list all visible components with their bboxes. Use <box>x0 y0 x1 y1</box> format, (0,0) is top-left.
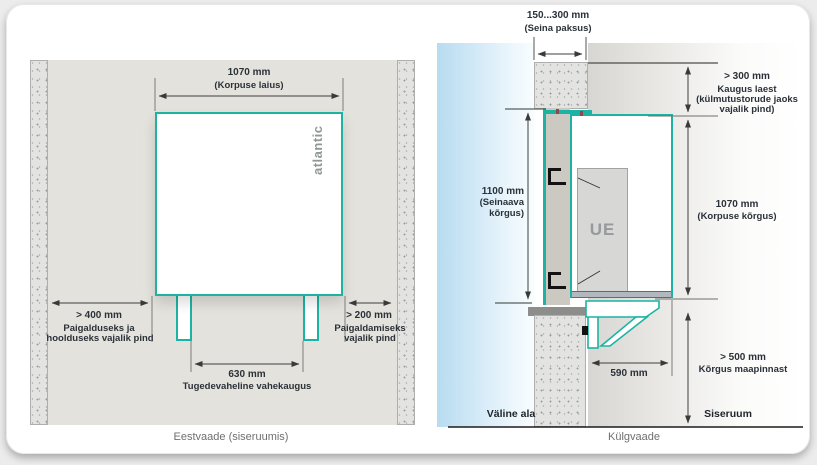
dim-opening-height-value: 1100 mm <box>420 186 524 197</box>
dim-opening-height-label1: (Seinaava <box>420 197 524 208</box>
dim-body-height-value: 1070 mm <box>716 199 759 210</box>
outdoor-area-label: Väline ala <box>487 408 535 420</box>
front-view-caption: Eestvaade (siseruumis) <box>174 431 289 443</box>
brand-text: atlantic <box>310 117 336 183</box>
dim-depth-value: 590 mm <box>610 368 647 379</box>
side-wall-upper <box>534 62 588 109</box>
dim-body-width-label: (Korpuse laius) <box>214 80 283 91</box>
dim-right-clearance-label2: vajalik pind <box>344 333 396 344</box>
dim-supports-label: Tugedevaheline vahekaugus <box>183 381 312 392</box>
dim-ground-height-value: > 500 mm <box>720 352 766 363</box>
support-leg-left <box>176 294 192 341</box>
indoor-area-label: Siseruum <box>704 408 752 420</box>
side-view-caption: Külgvaade <box>608 431 660 443</box>
wall-opening-duct <box>546 108 570 305</box>
ue-module-label: UE <box>590 220 616 240</box>
front-wall-right <box>397 60 415 425</box>
dim-opening-height-label2: kõrgus) <box>420 208 524 219</box>
installation-diagram: atlantic UE <box>0 0 817 465</box>
side-wall-lower <box>534 315 586 427</box>
front-wall-left <box>30 60 48 425</box>
outdoor-area <box>437 43 534 427</box>
dim-body-height-label: (Korpuse kõrgus) <box>697 211 776 222</box>
dim-opening-height: 1100 mm (Seinaava kõrgus) <box>420 186 524 219</box>
dim-supports-value: 630 mm <box>228 369 265 380</box>
ue-module: UE <box>577 168 628 292</box>
unit-base-plate <box>572 291 671 298</box>
dim-ground-height-label: Kõrgus maapinnast <box>699 364 788 375</box>
dim-left-clearance-value: > 400 mm <box>76 310 122 321</box>
dim-left-clearance-label2: hoolduseks vajalik pind <box>46 333 153 344</box>
support-leg-right <box>303 294 319 341</box>
dim-ceiling-clearance-value: > 300 mm <box>724 71 770 82</box>
dim-wall-thickness-value: 150...300 mm <box>527 10 589 21</box>
dim-right-clearance-value: > 200 mm <box>346 310 392 321</box>
dim-body-width-value: 1070 mm <box>228 67 271 78</box>
dim-ceiling-clearance-label3: vajalik pind) <box>720 104 775 115</box>
dim-wall-thickness-label: (Seina paksus) <box>524 23 591 34</box>
